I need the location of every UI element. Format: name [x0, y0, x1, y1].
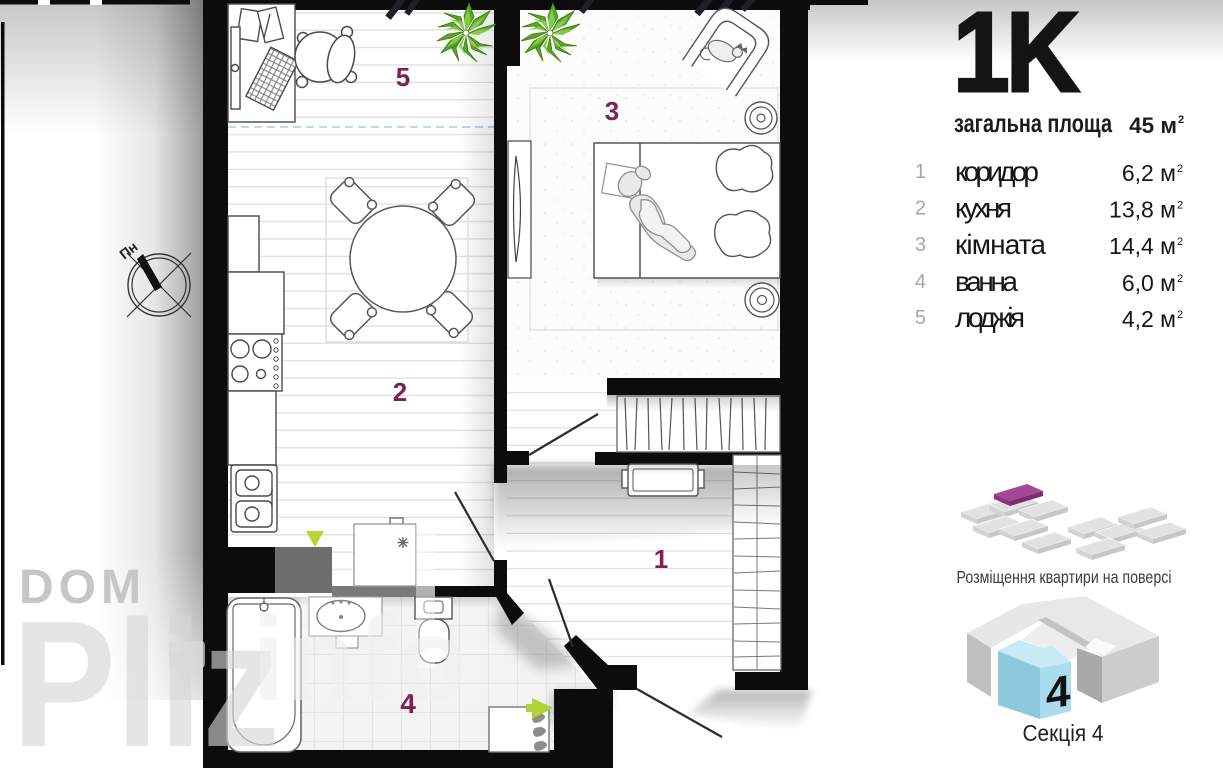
svg-text:2: 2: [1177, 200, 1183, 212]
svg-text:5: 5: [915, 307, 926, 329]
svg-text:кімната: кімната: [955, 229, 1046, 260]
svg-text:3: 3: [605, 96, 619, 126]
svg-text:Розміщення квартири на поверсі: Розміщення квартири на поверсі: [957, 567, 1172, 587]
svg-text:ванна: ванна: [955, 266, 1018, 297]
svg-text:3: 3: [915, 234, 926, 256]
svg-text:2: 2: [1177, 273, 1183, 285]
svg-text:Pliz: Pliz: [12, 584, 280, 768]
svg-text:4,2 м: 4,2 м: [1122, 306, 1176, 332]
svg-text:лоджія: лоджія: [955, 302, 1025, 333]
svg-text:1: 1: [654, 544, 668, 574]
svg-text:1: 1: [915, 161, 926, 183]
svg-text:4: 4: [1046, 666, 1071, 719]
svg-text:info: info: [252, 594, 468, 726]
svg-text:1K: 1K: [953, 0, 1079, 115]
svg-text:2: 2: [1177, 163, 1183, 175]
svg-text:кухня: кухня: [955, 193, 1012, 224]
svg-text:2: 2: [915, 198, 926, 220]
svg-text:5: 5: [396, 62, 410, 92]
svg-text:2: 2: [1178, 114, 1184, 126]
svg-text:2: 2: [1177, 309, 1183, 321]
svg-text:14,4 м: 14,4 м: [1109, 233, 1176, 259]
svg-text:2: 2: [393, 377, 407, 407]
svg-text:2: 2: [1177, 236, 1183, 248]
svg-text:6,0 м: 6,0 м: [1122, 270, 1176, 296]
svg-text:4: 4: [915, 271, 926, 293]
svg-text:13,8 м: 13,8 м: [1109, 197, 1176, 223]
svg-text:6,2 м: 6,2 м: [1122, 160, 1176, 186]
svg-text:загальна площа: загальна площа: [954, 108, 1112, 138]
svg-text:Секція 4: Секція 4: [1023, 720, 1104, 746]
svg-text:45 м: 45 м: [1129, 113, 1177, 138]
svg-text:коридор: коридор: [955, 156, 1039, 187]
